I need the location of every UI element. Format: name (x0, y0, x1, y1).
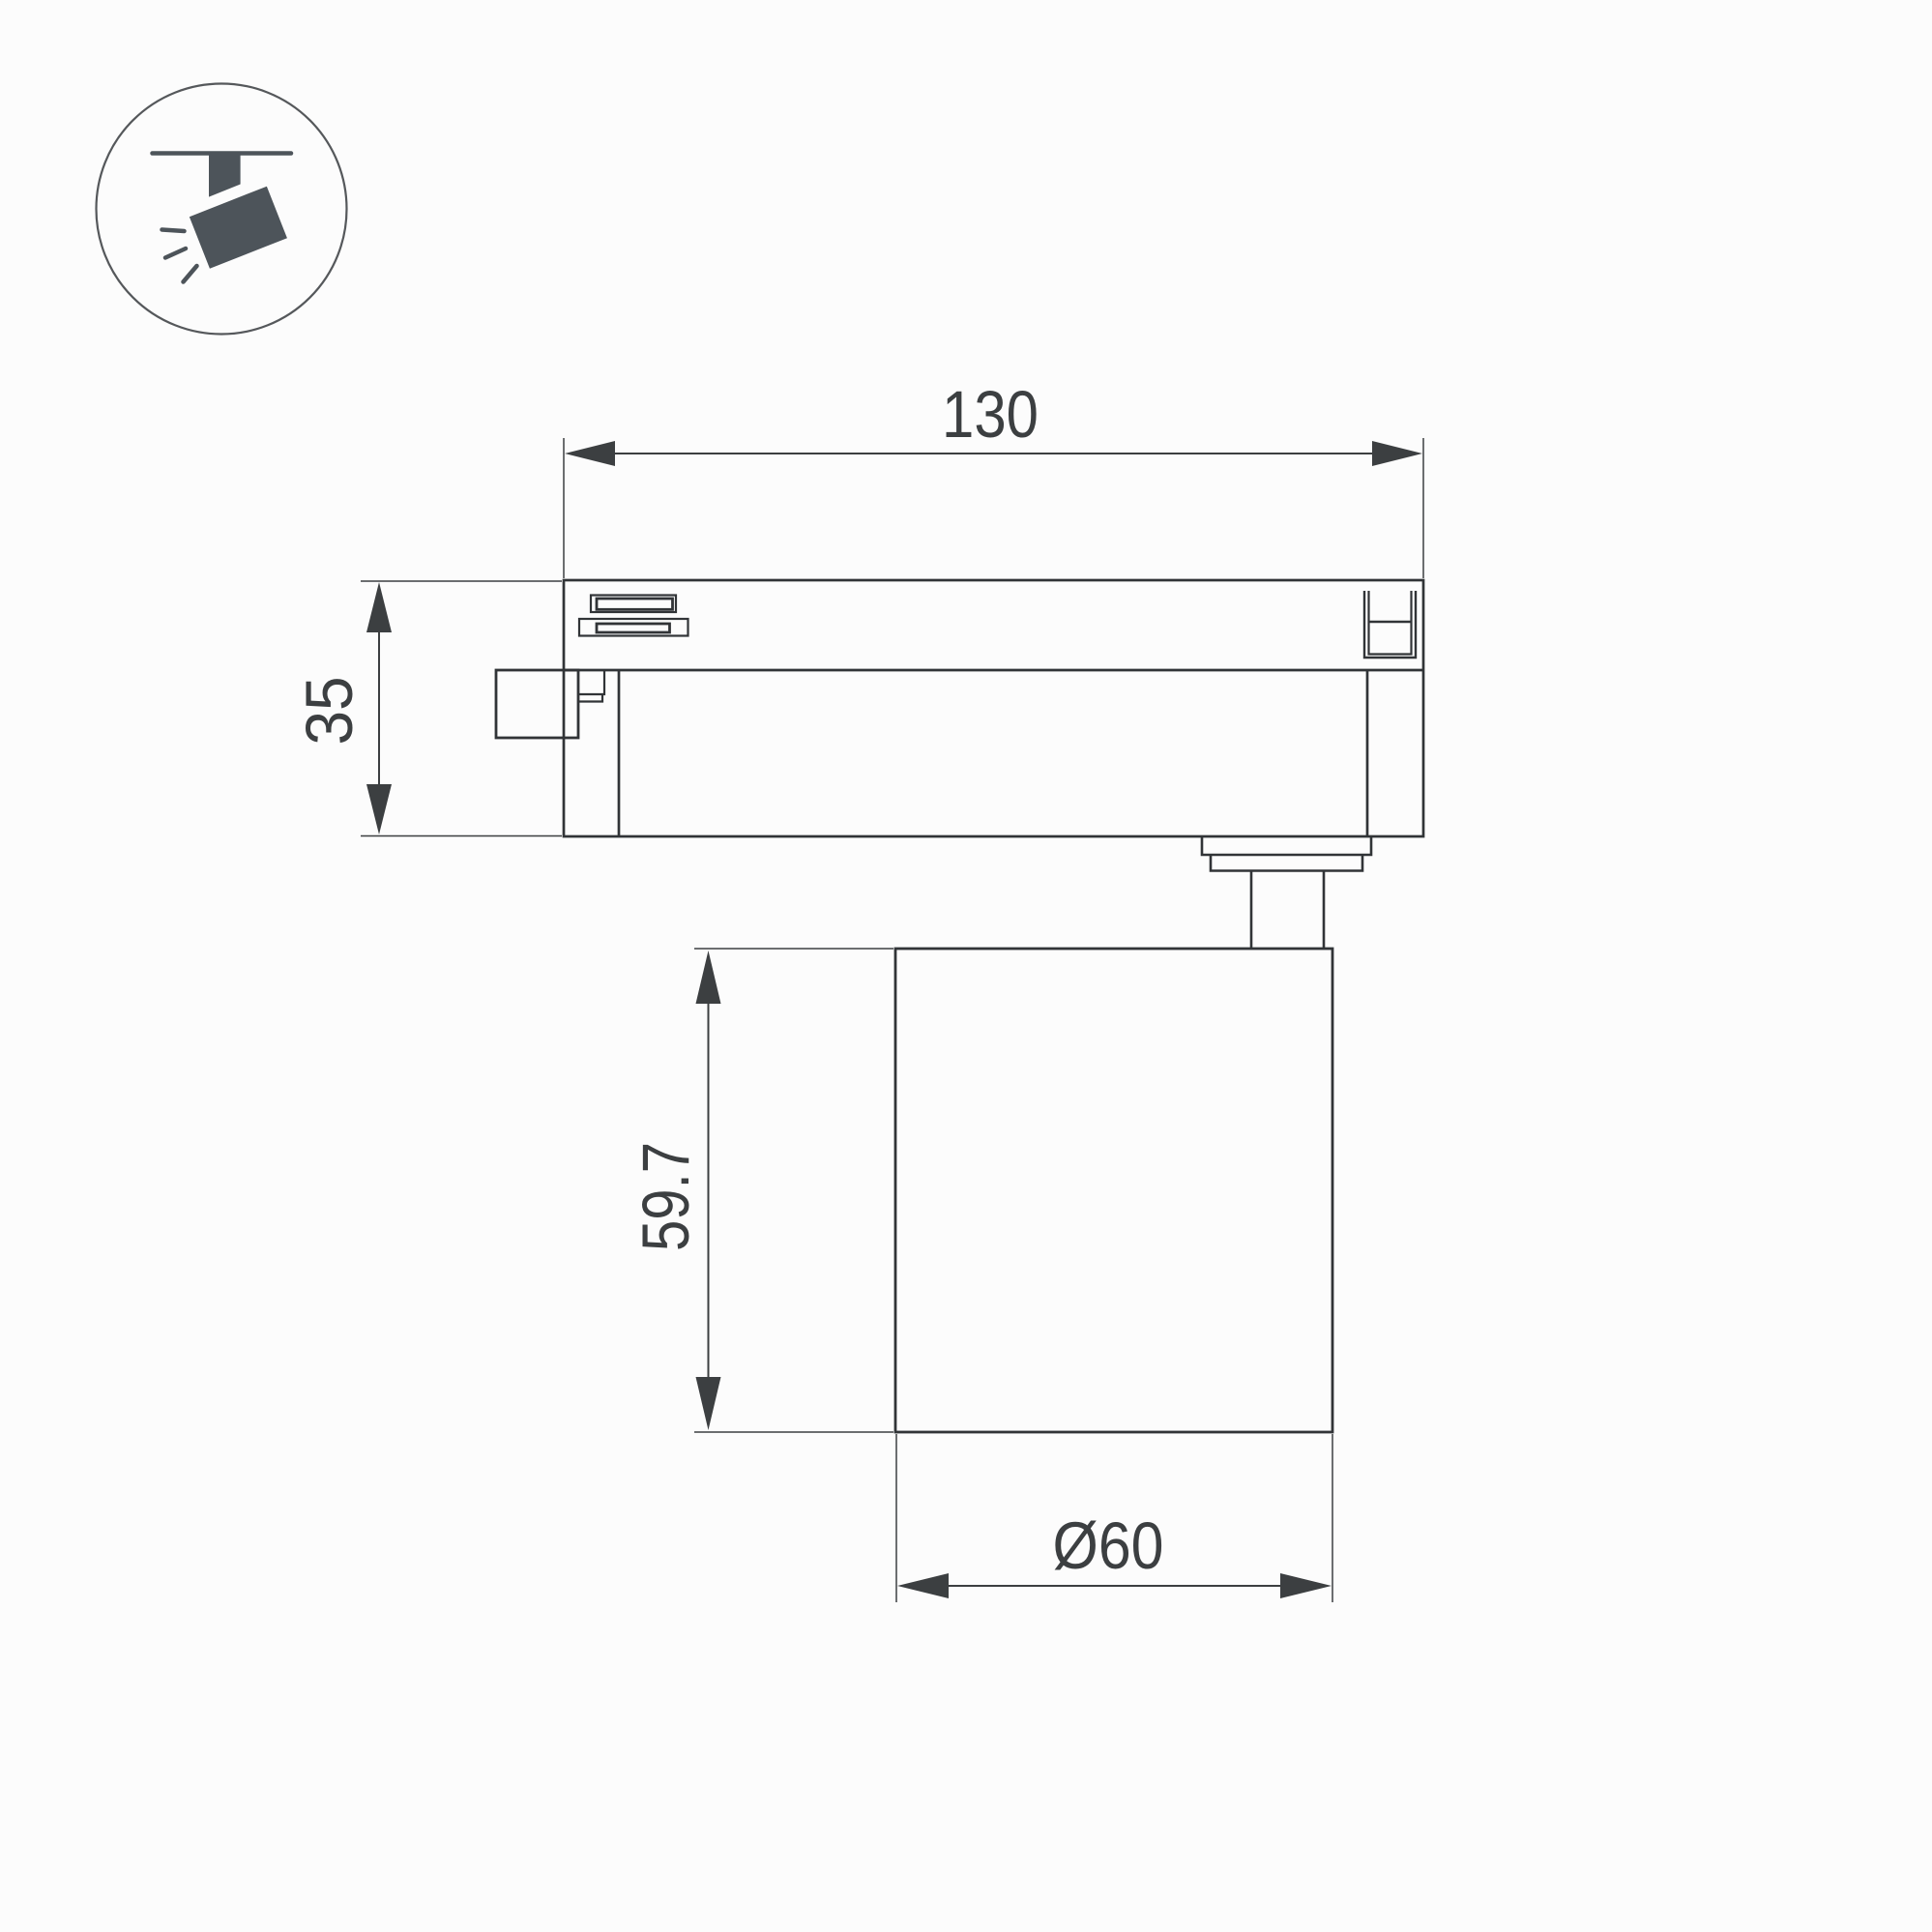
svg-text:Ø60: Ø60 (1053, 1508, 1164, 1583)
svg-text:59.7: 59.7 (629, 1142, 703, 1251)
svg-text:35: 35 (292, 677, 366, 746)
svg-text:130: 130 (942, 377, 1039, 452)
